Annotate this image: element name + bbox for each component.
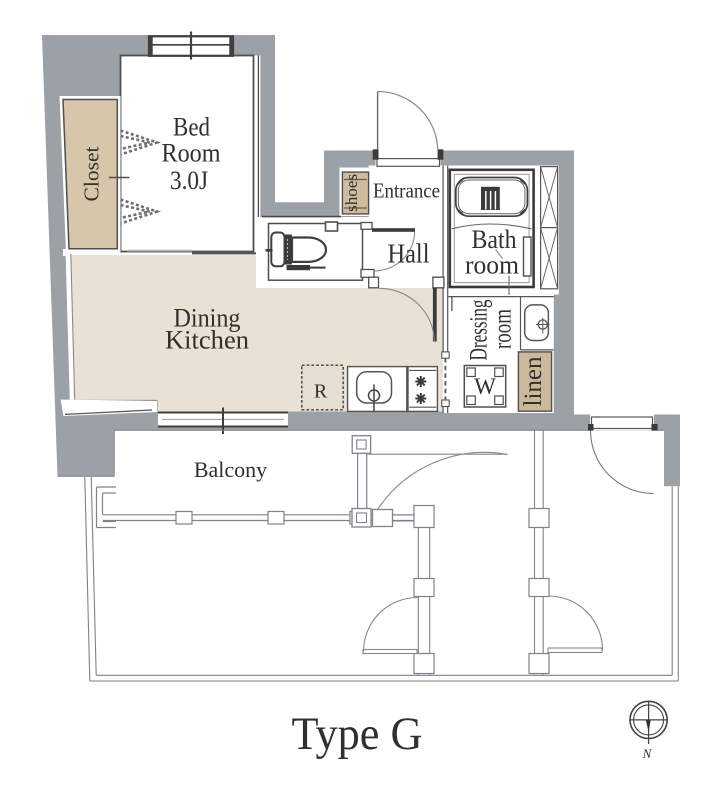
svg-text:Bath: Bath	[472, 225, 517, 254]
svg-text:linen: linen	[520, 356, 547, 406]
svg-text:R: R	[314, 381, 328, 403]
svg-text:room: room	[490, 309, 517, 349]
svg-text:3.0J: 3.0J	[170, 165, 208, 195]
svg-text:W: W	[474, 374, 496, 399]
svg-text:Kitchen: Kitchen	[165, 326, 249, 355]
svg-text:shoes: shoes	[342, 174, 361, 212]
svg-text:Type G: Type G	[292, 708, 423, 760]
svg-text:room: room	[465, 251, 519, 280]
svg-text:Dressing: Dressing	[465, 299, 492, 360]
svg-text:Entrance: Entrance	[373, 179, 440, 203]
svg-text:N: N	[642, 746, 653, 761]
svg-text:Hall: Hall	[388, 239, 430, 269]
svg-text:Room: Room	[162, 138, 221, 168]
svg-text:Closet: Closet	[80, 147, 104, 202]
svg-text:Balcony: Balcony	[194, 457, 267, 482]
